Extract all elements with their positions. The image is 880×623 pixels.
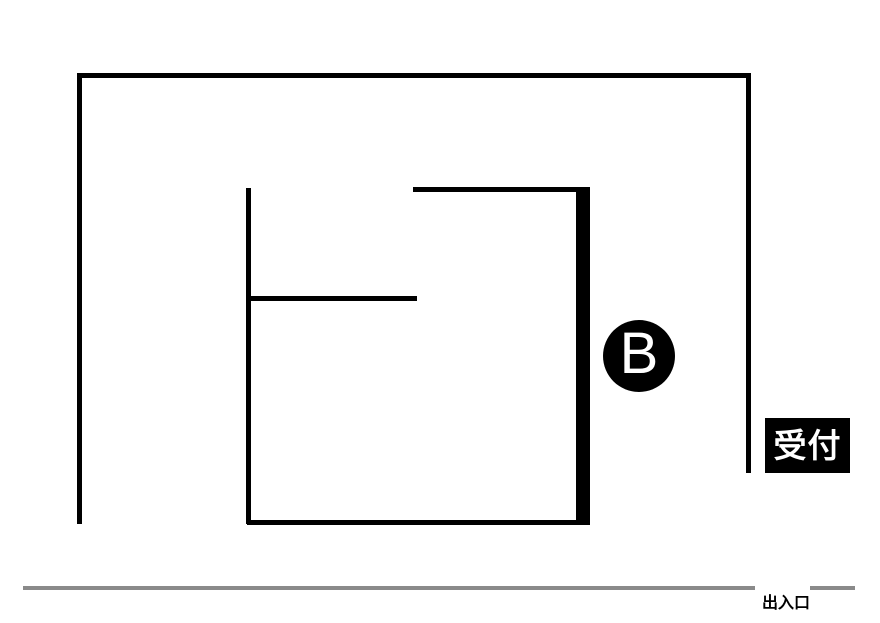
location-marker-b-label: B <box>620 325 659 383</box>
outer-wall-left <box>77 73 82 524</box>
reception-label: 受付 <box>774 429 842 462</box>
inner-wall-vertical-left <box>246 188 251 524</box>
inner-wall-vertical-right-thick <box>576 187 590 525</box>
inner-wall-horizontal-middle <box>246 296 417 301</box>
outer-wall-right <box>746 73 751 473</box>
floor-plan: B 受付 出入口 <box>0 0 880 623</box>
location-marker-b: B <box>603 320 675 392</box>
inner-wall-horizontal-bottom <box>247 520 590 525</box>
entrance-line-short <box>810 586 855 590</box>
entrance-line-long <box>23 586 755 590</box>
entrance-label: 出入口 <box>762 596 810 612</box>
outer-wall-top <box>77 73 751 78</box>
inner-wall-horizontal-top <box>413 187 590 192</box>
reception-label-box: 受付 <box>765 418 850 473</box>
